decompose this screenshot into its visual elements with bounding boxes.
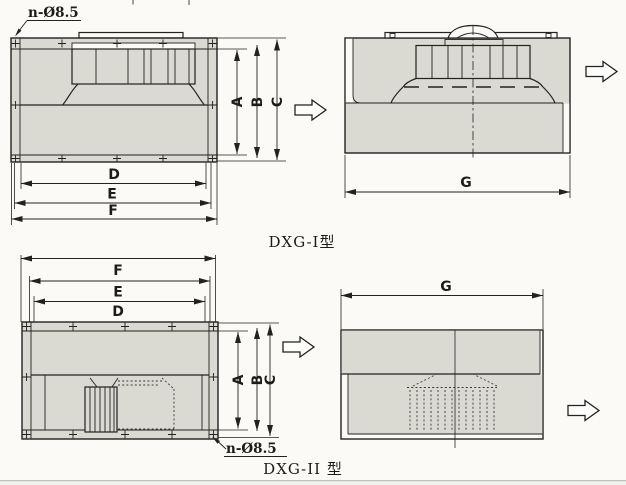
dxg2-side-view (341, 330, 543, 448)
dxg1-dim-g: G (345, 155, 570, 198)
dxg2-dims-horizontal: F E D (21, 255, 216, 322)
dxg1-dim-label-e: E (107, 187, 117, 203)
dxg1-dims-vertical: A B C (217, 38, 286, 161)
dxg2-caption: DXG-II 型 (263, 460, 343, 478)
dxg2-dims-vertical: A B C (218, 323, 279, 438)
dxg2-hole-label: n-Ø8.5 (226, 441, 277, 457)
dxg2-casing (22, 322, 218, 439)
dxg1-dim-label-b: B (250, 97, 266, 108)
dxg1-flow-arrow (295, 100, 326, 120)
dxg1-impeller-mount (72, 43, 195, 49)
dxg1-caption: DXG-I型 (269, 233, 336, 251)
dxg1-dim-label-d: D (108, 167, 120, 183)
dxg2-dim-label-g: G (440, 279, 452, 295)
dxg2-dim-label-f: F (113, 263, 123, 279)
dxg2-hole-note: n-Ø8.5 (212, 437, 287, 458)
dxg1-top-plate (79, 33, 183, 39)
dxg1-hole-note: n-Ø8.5 (15, 5, 81, 37)
dxg1-dims-horizontal: D E F (12, 163, 218, 225)
dxg2-dim-label-d: D (112, 304, 124, 320)
dxg1-dim-label-a: A (230, 96, 246, 107)
dxg2-flow-arrow (283, 337, 314, 357)
fan-dimension-drawing: n-Ø8.5 A B C D E F (0, 0, 626, 485)
dxg1-side-view (345, 26, 570, 159)
dxg2-dim-label-e: E (113, 285, 123, 301)
dxg1-dim-label-f: F (108, 203, 118, 219)
dxg2-dim-label-c: C (263, 375, 279, 385)
dxg2-front-view (22, 322, 218, 439)
dxg1-dim-label-g: G (460, 175, 472, 191)
dxg2-impeller (85, 387, 117, 432)
dxg2-dim-g: G (341, 279, 543, 329)
technical-drawing-canvas: n-Ø8.5 A B C D E F (0, 0, 626, 485)
dxg1-hole-label: n-Ø8.5 (28, 5, 79, 21)
dxg1-front-view (11, 33, 217, 163)
dxg1-dim-label-c: C (270, 97, 286, 107)
dxg2-dim-label-a: A (231, 374, 247, 385)
dxg1-impeller (72, 49, 195, 84)
dxg2-outlet-arrow (568, 401, 599, 421)
dxg1-outlet-arrow (586, 62, 617, 82)
